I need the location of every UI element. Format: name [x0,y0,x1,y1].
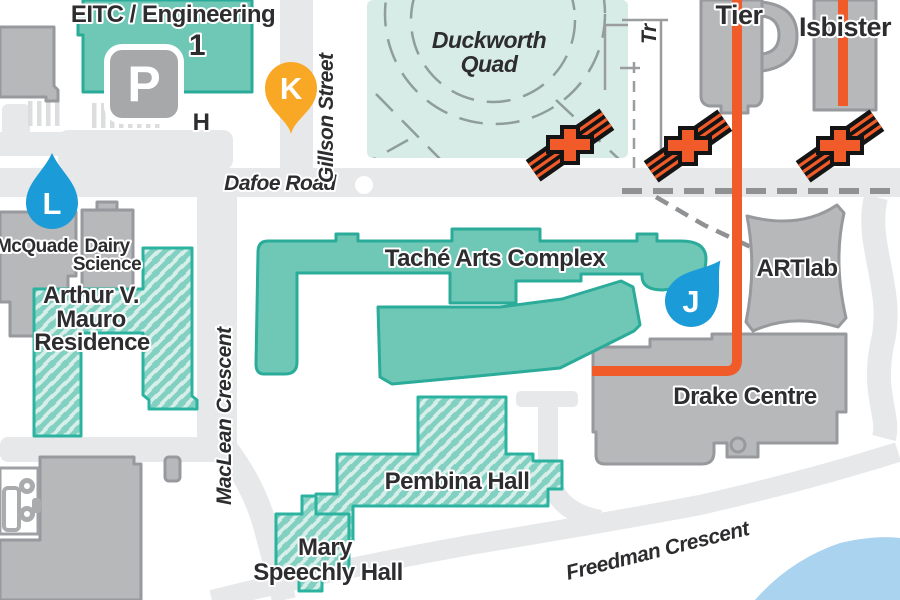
label-eitc: EITC / Engineering [71,1,275,28]
label-eitc-number: 1 [189,29,205,62]
road-east-curve [873,197,885,438]
label-artlab: ARTlab [757,255,838,282]
label-dairy-2: Science [73,254,141,275]
parking-icon[interactable]: P [107,47,181,121]
campus-map: P H EITC / Engineering 1 Duckworth Quad … [0,0,900,600]
road-junction-dot [355,176,373,194]
label-tache: Taché Arts Complex [385,245,607,272]
label-mary-1: Mary [298,534,353,561]
campus-map-svg: P H EITC / Engineering 1 Duckworth Quad … [0,0,900,600]
map-marker-l-letter: L [43,186,62,221]
label-maclean-crescent: MacLean Crescent [213,326,236,505]
label-drake: Drake Centre [673,383,817,410]
map-marker-j-letter: J [682,284,699,319]
label-gillson-street: Gillson Street [315,52,338,183]
label-pembina: Pembina Hall [385,468,530,495]
h-marker[interactable]: H [193,109,210,136]
river-water [755,537,900,600]
road-nw-stub [2,104,30,144]
parking-icon-letter: P [127,56,160,112]
map-pin-k-letter: K [280,71,303,106]
label-mcquade: McQuade [0,236,78,257]
label-mauro-1: Arthur V. [43,282,139,309]
label-isbister: Isbister [799,12,892,42]
label-tier: Tier [715,0,763,30]
label-duckworth-2: Quad [461,51,519,77]
label-mary-2: Speechly Hall [253,559,403,586]
label-mauro-3: Residence [34,329,150,356]
label-partial-road: Tr [638,22,661,44]
parking-apron [58,130,233,170]
building-northwest[interactable] [0,27,58,101]
label-duckworth-1: Duckworth [432,27,547,53]
building-southwest[interactable] [0,457,180,600]
road-drake-stub [516,391,578,407]
